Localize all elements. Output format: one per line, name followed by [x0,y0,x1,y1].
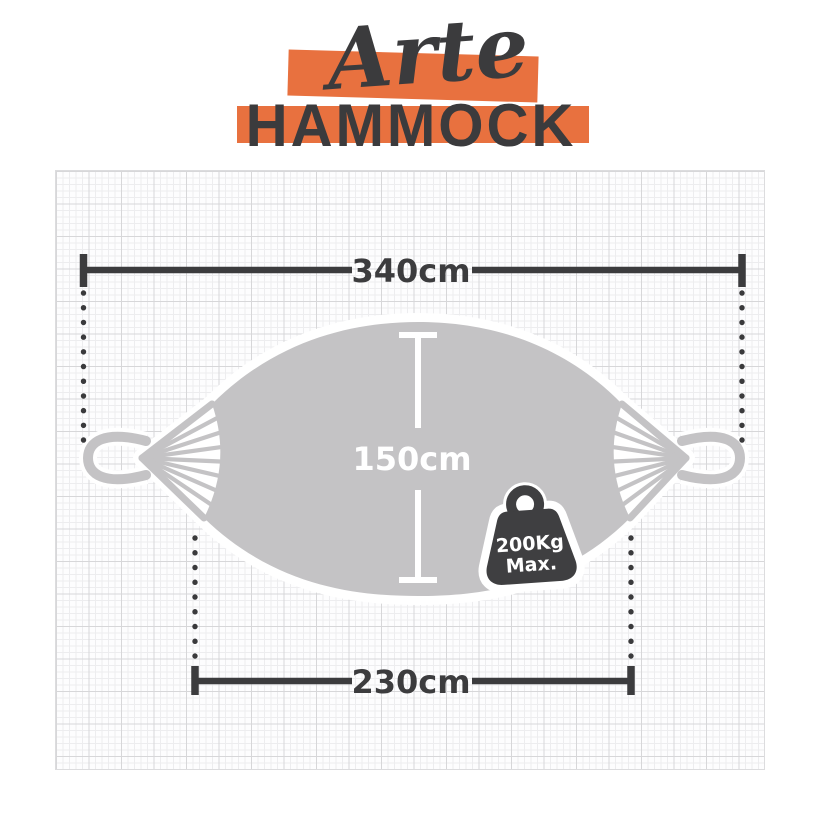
bed-length-label: 230cm [351,663,470,701]
product-infographic: Arte HAMMOCK [0,0,813,813]
hammock-diagram: 340cm 230cm 150cm [0,0,813,813]
bed-width-label: 150cm [352,440,471,478]
total-length-label: 340cm [351,252,470,290]
weight-limit-suffix: Max. [505,552,558,578]
